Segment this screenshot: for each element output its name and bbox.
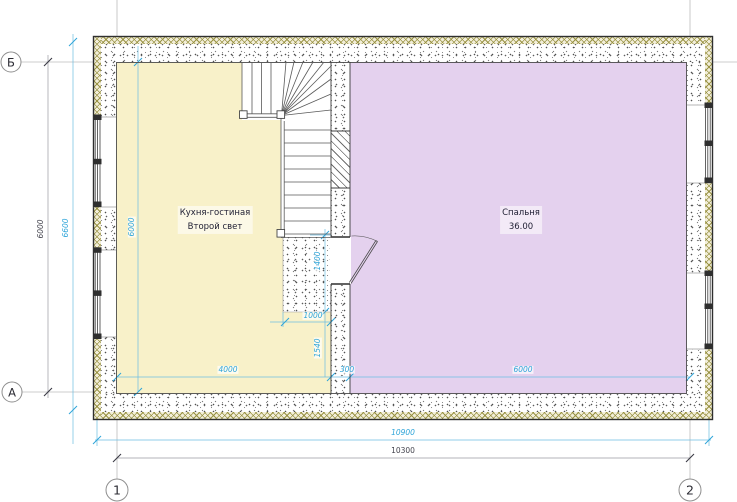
axis-marker-col-left-label: 1 — [113, 483, 121, 498]
axis-marker-col-left: 1 — [106, 479, 129, 502]
dim-kitchen-width: 4000 — [217, 366, 238, 374]
plan-linework — [0, 0, 737, 502]
dim-inner-height: 6000 — [128, 216, 136, 237]
dim-axis-height: 6000 — [37, 218, 45, 239]
axis-marker-row-bottom: А — [2, 382, 23, 403]
axis-marker-col-right: 2 — [679, 479, 702, 502]
dim-partition: 300 — [339, 366, 355, 374]
dim-bedroom-width: 6000 — [512, 366, 533, 374]
axis-marker-row-top-label: Б — [7, 55, 15, 69]
kitchen-room-label: Кухня-гостиная Второй свет — [178, 206, 253, 234]
axis-marker-row-top: Б — [1, 52, 22, 73]
axis-marker-col-right-label: 2 — [686, 483, 694, 498]
floor-plan-canvas: Кухня-гостиная Второй свет Спальня 36.00… — [0, 0, 737, 502]
dim-outer-width: 10900 — [390, 429, 416, 437]
axis-marker-row-bottom-label: А — [8, 385, 16, 399]
dim-axis-width: 10300 — [390, 447, 416, 455]
kitchen-label-line2: Второй свет — [178, 220, 253, 234]
bedroom-label-line1: Спальня — [500, 206, 542, 220]
dim-void-height: 1400 — [314, 250, 322, 271]
kitchen-label-line1: Кухня-гостиная — [178, 206, 253, 220]
dim-outer-height: 6600 — [62, 217, 70, 238]
dim-void-width: 1000 — [302, 312, 323, 320]
bedroom-label-line2: 36.00 — [500, 220, 542, 234]
dim-below-void: 1540 — [314, 337, 322, 358]
bedroom-room-label: Спальня 36.00 — [500, 206, 542, 234]
